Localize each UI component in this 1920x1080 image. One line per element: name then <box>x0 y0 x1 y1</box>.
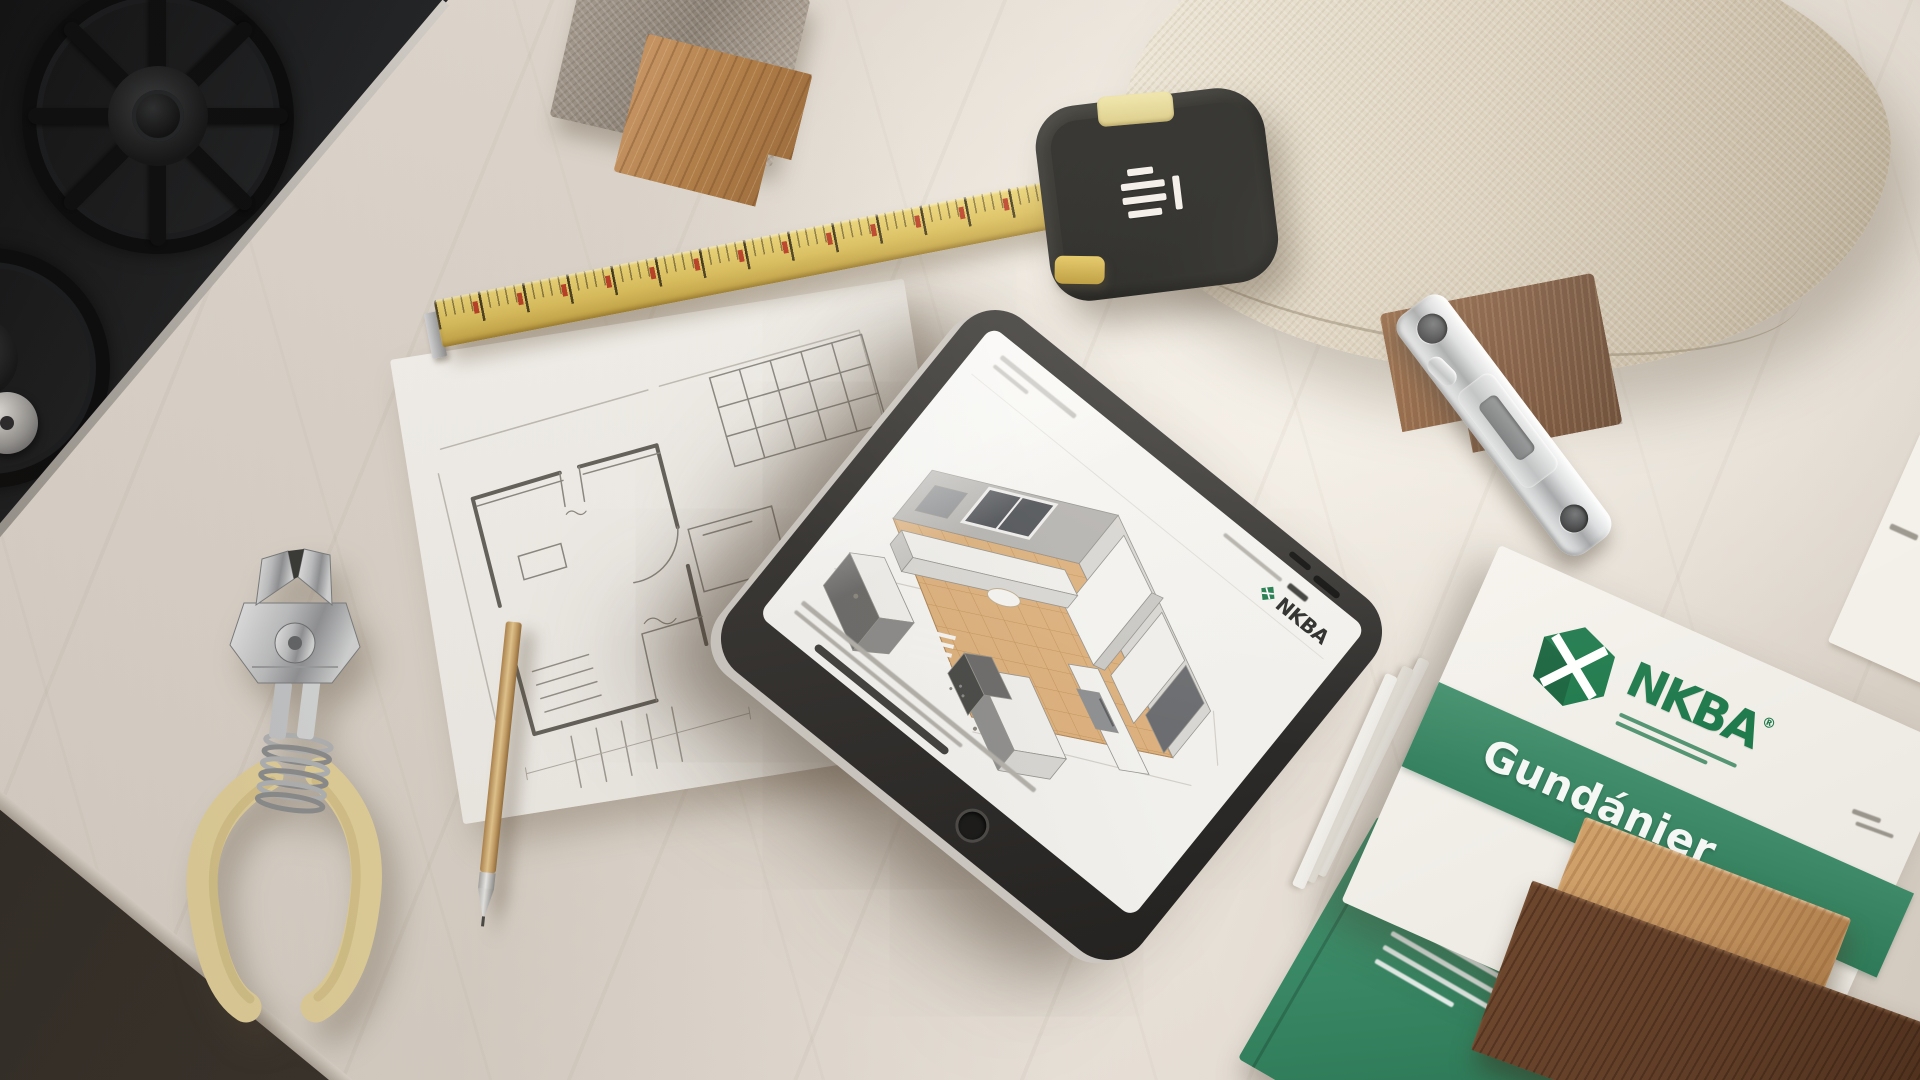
burner-cap <box>132 90 184 142</box>
cover-small-mark <box>1855 821 1894 838</box>
brochure-brand-text: NKBA <box>1618 652 1768 760</box>
nkba-hexagon-icon <box>1521 613 1627 719</box>
stove-knob-marker <box>0 416 14 430</box>
edge-paper-sliver <box>1828 431 1920 702</box>
tape-measure-case <box>1031 83 1283 306</box>
hinge-screw-hole <box>1555 499 1594 538</box>
pencil-ferrule <box>478 872 496 890</box>
sliver-mark <box>1889 523 1919 541</box>
header-caption-text <box>1223 532 1283 582</box>
gas-stove <box>0 0 470 560</box>
hinge-screw-hole <box>1411 308 1453 350</box>
home-button <box>948 802 996 850</box>
pencil-tip <box>475 888 494 918</box>
tape-belt-clip <box>1054 256 1104 285</box>
pencil-lead <box>481 916 485 926</box>
wire-strippers <box>160 545 430 1025</box>
nkba-diamond-icon <box>1256 581 1280 605</box>
countertop-scene: NKBA <box>0 0 1920 1080</box>
kitchen-3d-render <box>786 374 1310 876</box>
